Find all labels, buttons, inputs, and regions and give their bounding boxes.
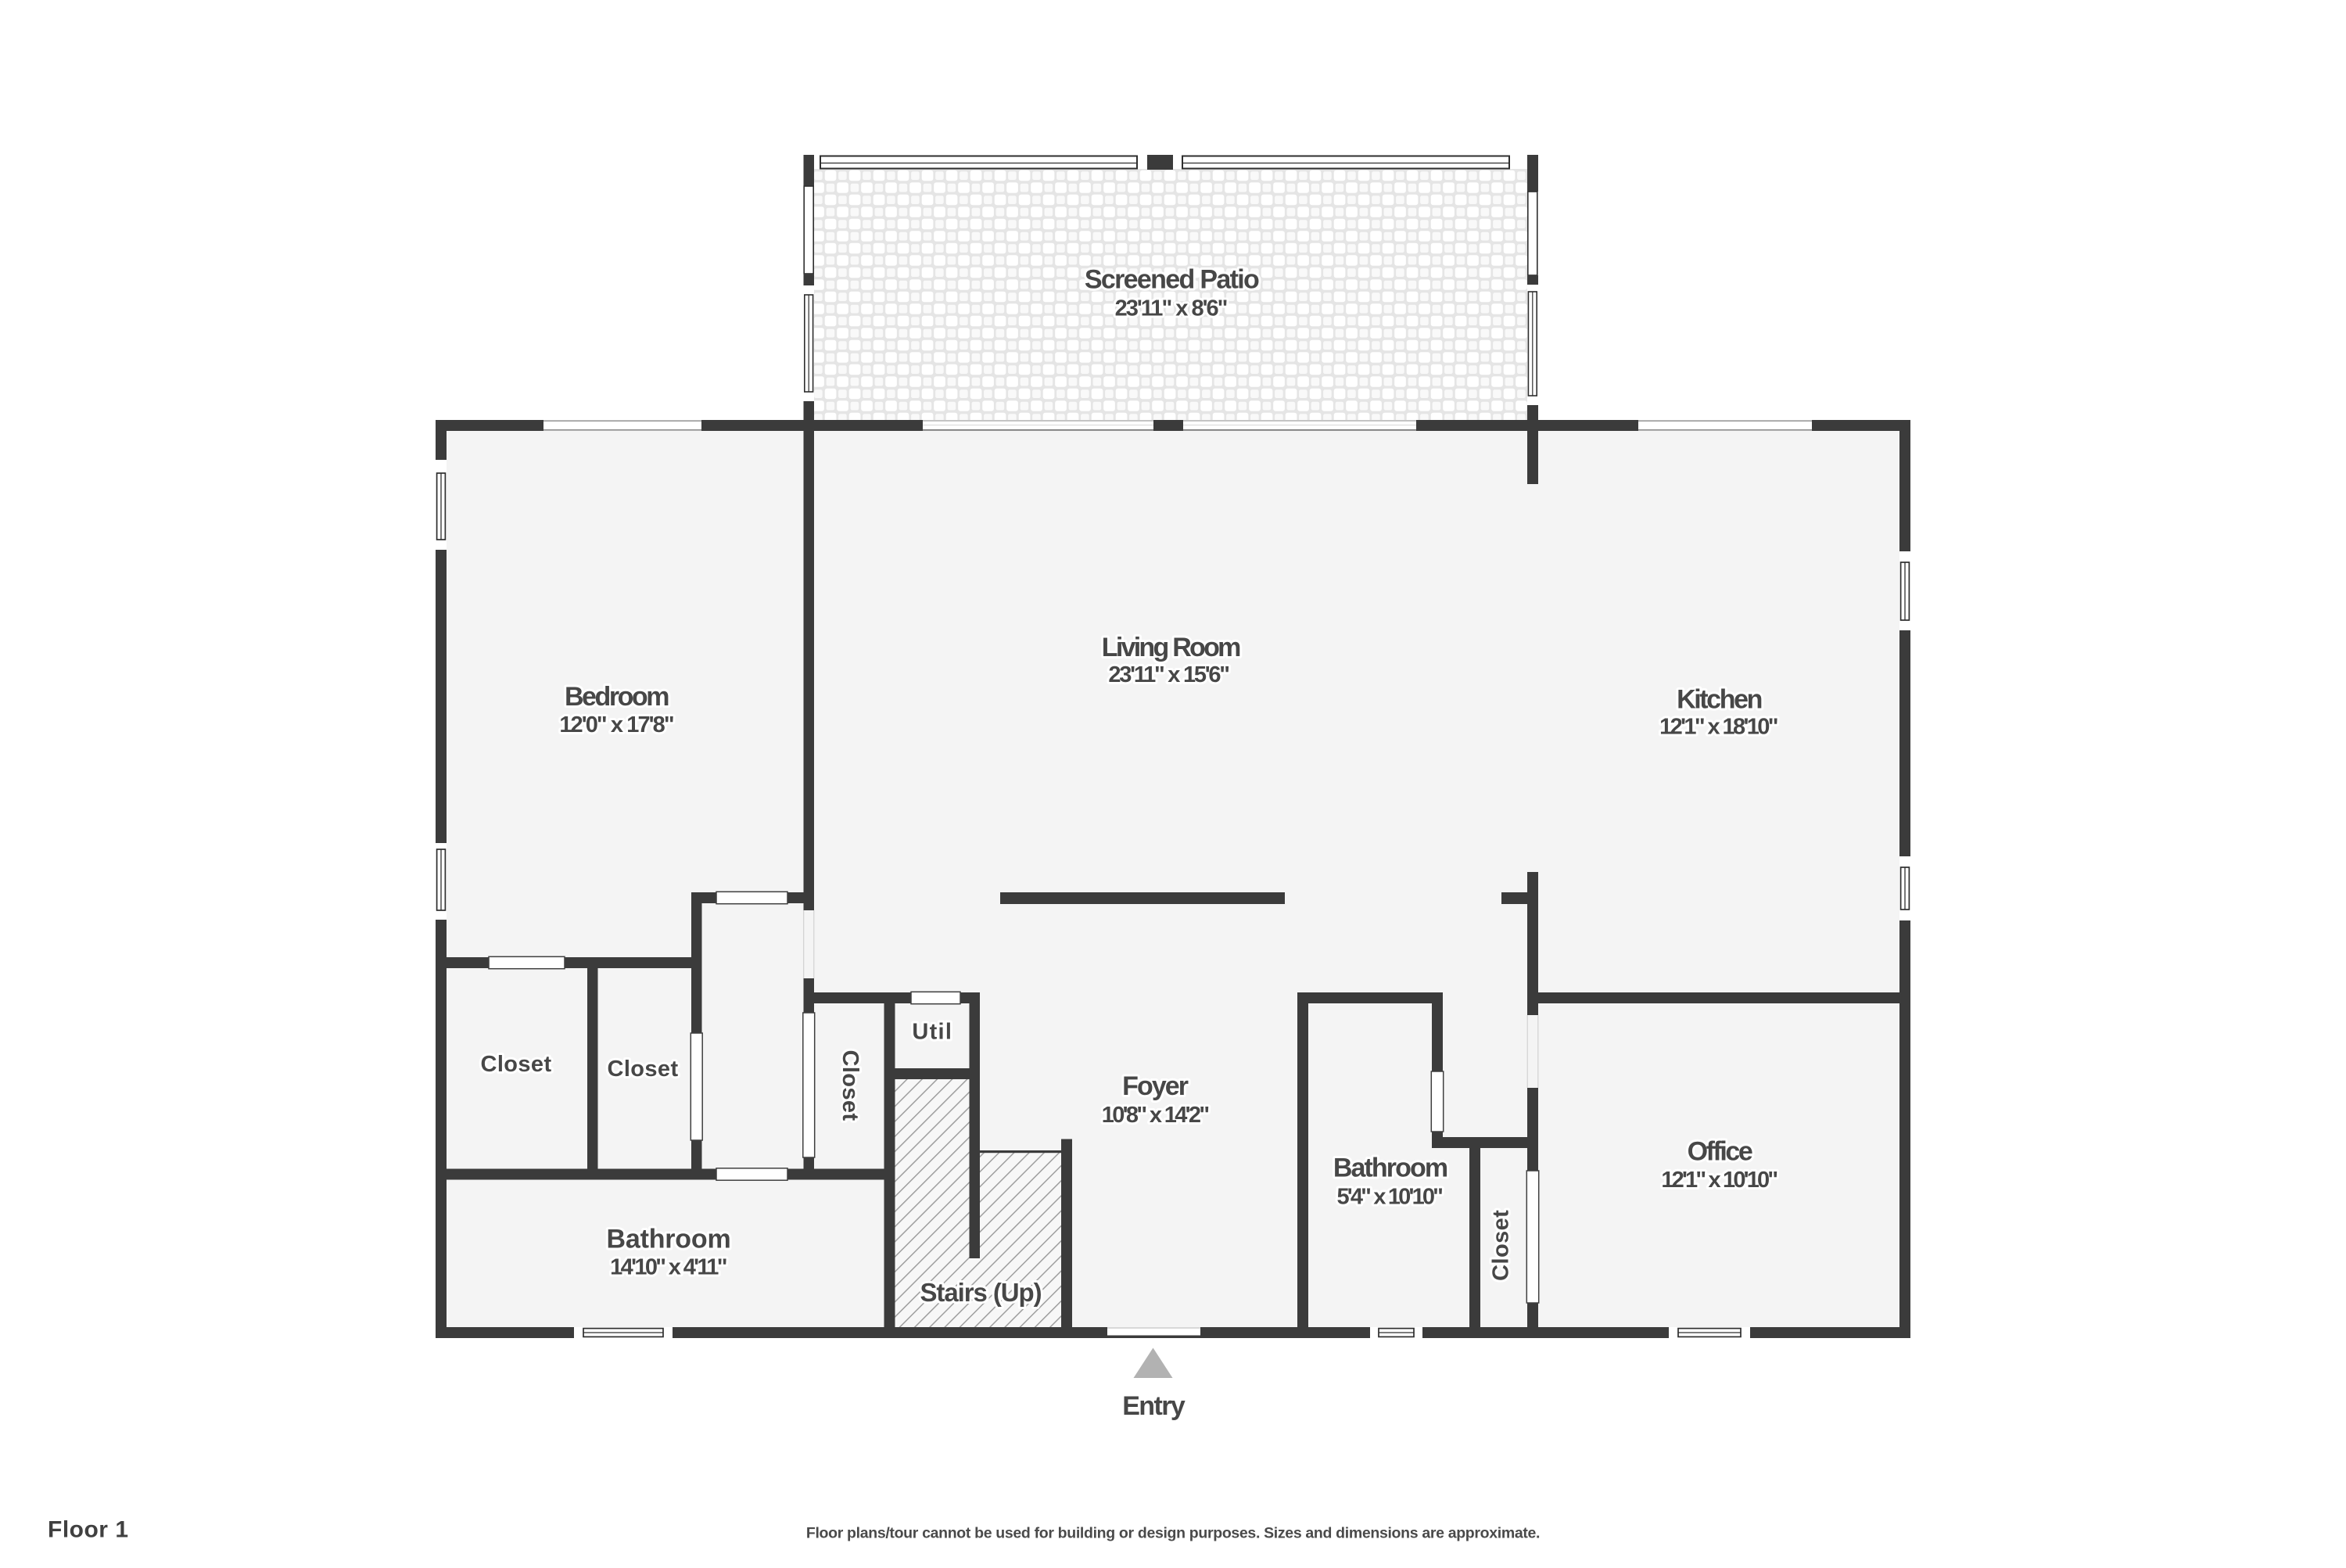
svg-text:Bathroom: Bathroom — [1333, 1154, 1447, 1183]
svg-text:Closet: Closet — [838, 1050, 863, 1121]
svg-text:12'0" x 17'8": 12'0" x 17'8" — [559, 712, 673, 737]
svg-text:Bedroom: Bedroom — [565, 682, 669, 712]
svg-text:Util: Util — [912, 1020, 952, 1045]
svg-text:Office: Office — [1688, 1137, 1752, 1167]
svg-text:Screened Patio: Screened Patio — [1085, 265, 1259, 295]
svg-text:Closet: Closet — [607, 1057, 678, 1082]
svg-text:Entry: Entry — [1122, 1391, 1186, 1421]
svg-text:10'8" x 14'2": 10'8" x 14'2" — [1102, 1103, 1209, 1128]
svg-text:Floor plans/tour cannot be use: Floor plans/tour cannot be used for buil… — [806, 1525, 1540, 1542]
svg-text:23'11" x 15'6": 23'11" x 15'6" — [1108, 662, 1229, 687]
svg-text:Bathroom: Bathroom — [607, 1225, 731, 1254]
svg-text:23'11" x 8'6": 23'11" x 8'6" — [1115, 296, 1227, 321]
svg-text:Floor 1: Floor 1 — [48, 1517, 129, 1543]
svg-text:12'1" x 10'10": 12'1" x 10'10" — [1661, 1168, 1777, 1193]
svg-text:Foyer: Foyer — [1122, 1071, 1189, 1101]
svg-text:Closet: Closet — [480, 1052, 551, 1077]
svg-text:Closet: Closet — [1489, 1210, 1514, 1281]
svg-text:5'4" x 10'10": 5'4" x 10'10" — [1336, 1185, 1442, 1210]
svg-text:Living Room: Living Room — [1102, 633, 1240, 662]
svg-text:Kitchen: Kitchen — [1677, 684, 1762, 714]
svg-text:14'10" x 4'11": 14'10" x 4'11" — [610, 1255, 726, 1280]
svg-text:Stairs (Up): Stairs (Up) — [920, 1278, 1041, 1307]
svg-text:12'1" x 18'10": 12'1" x 18'10" — [1659, 715, 1777, 740]
